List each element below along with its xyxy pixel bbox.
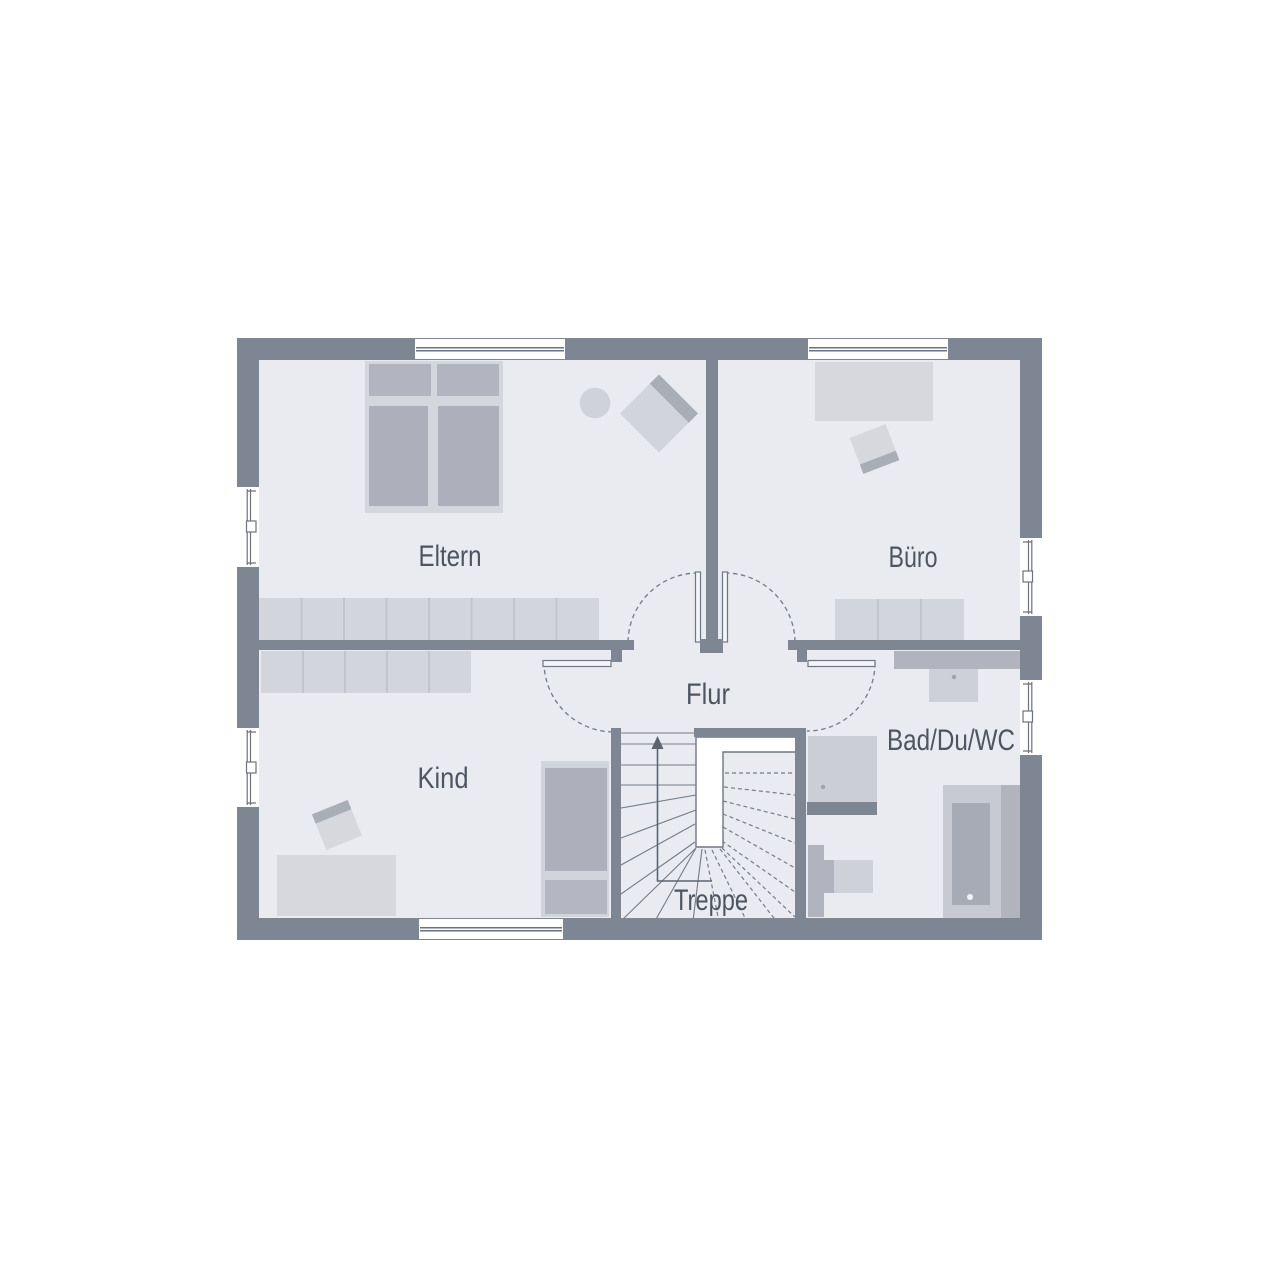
svg-text:Bad/Du/WC: Bad/Du/WC bbox=[887, 724, 1015, 757]
svg-text:Treppe: Treppe bbox=[674, 884, 748, 917]
svg-text:Büro: Büro bbox=[889, 541, 938, 574]
svg-text:Kind: Kind bbox=[418, 762, 469, 795]
svg-text:Eltern: Eltern bbox=[419, 540, 482, 573]
svg-text:Flur: Flur bbox=[686, 678, 730, 711]
